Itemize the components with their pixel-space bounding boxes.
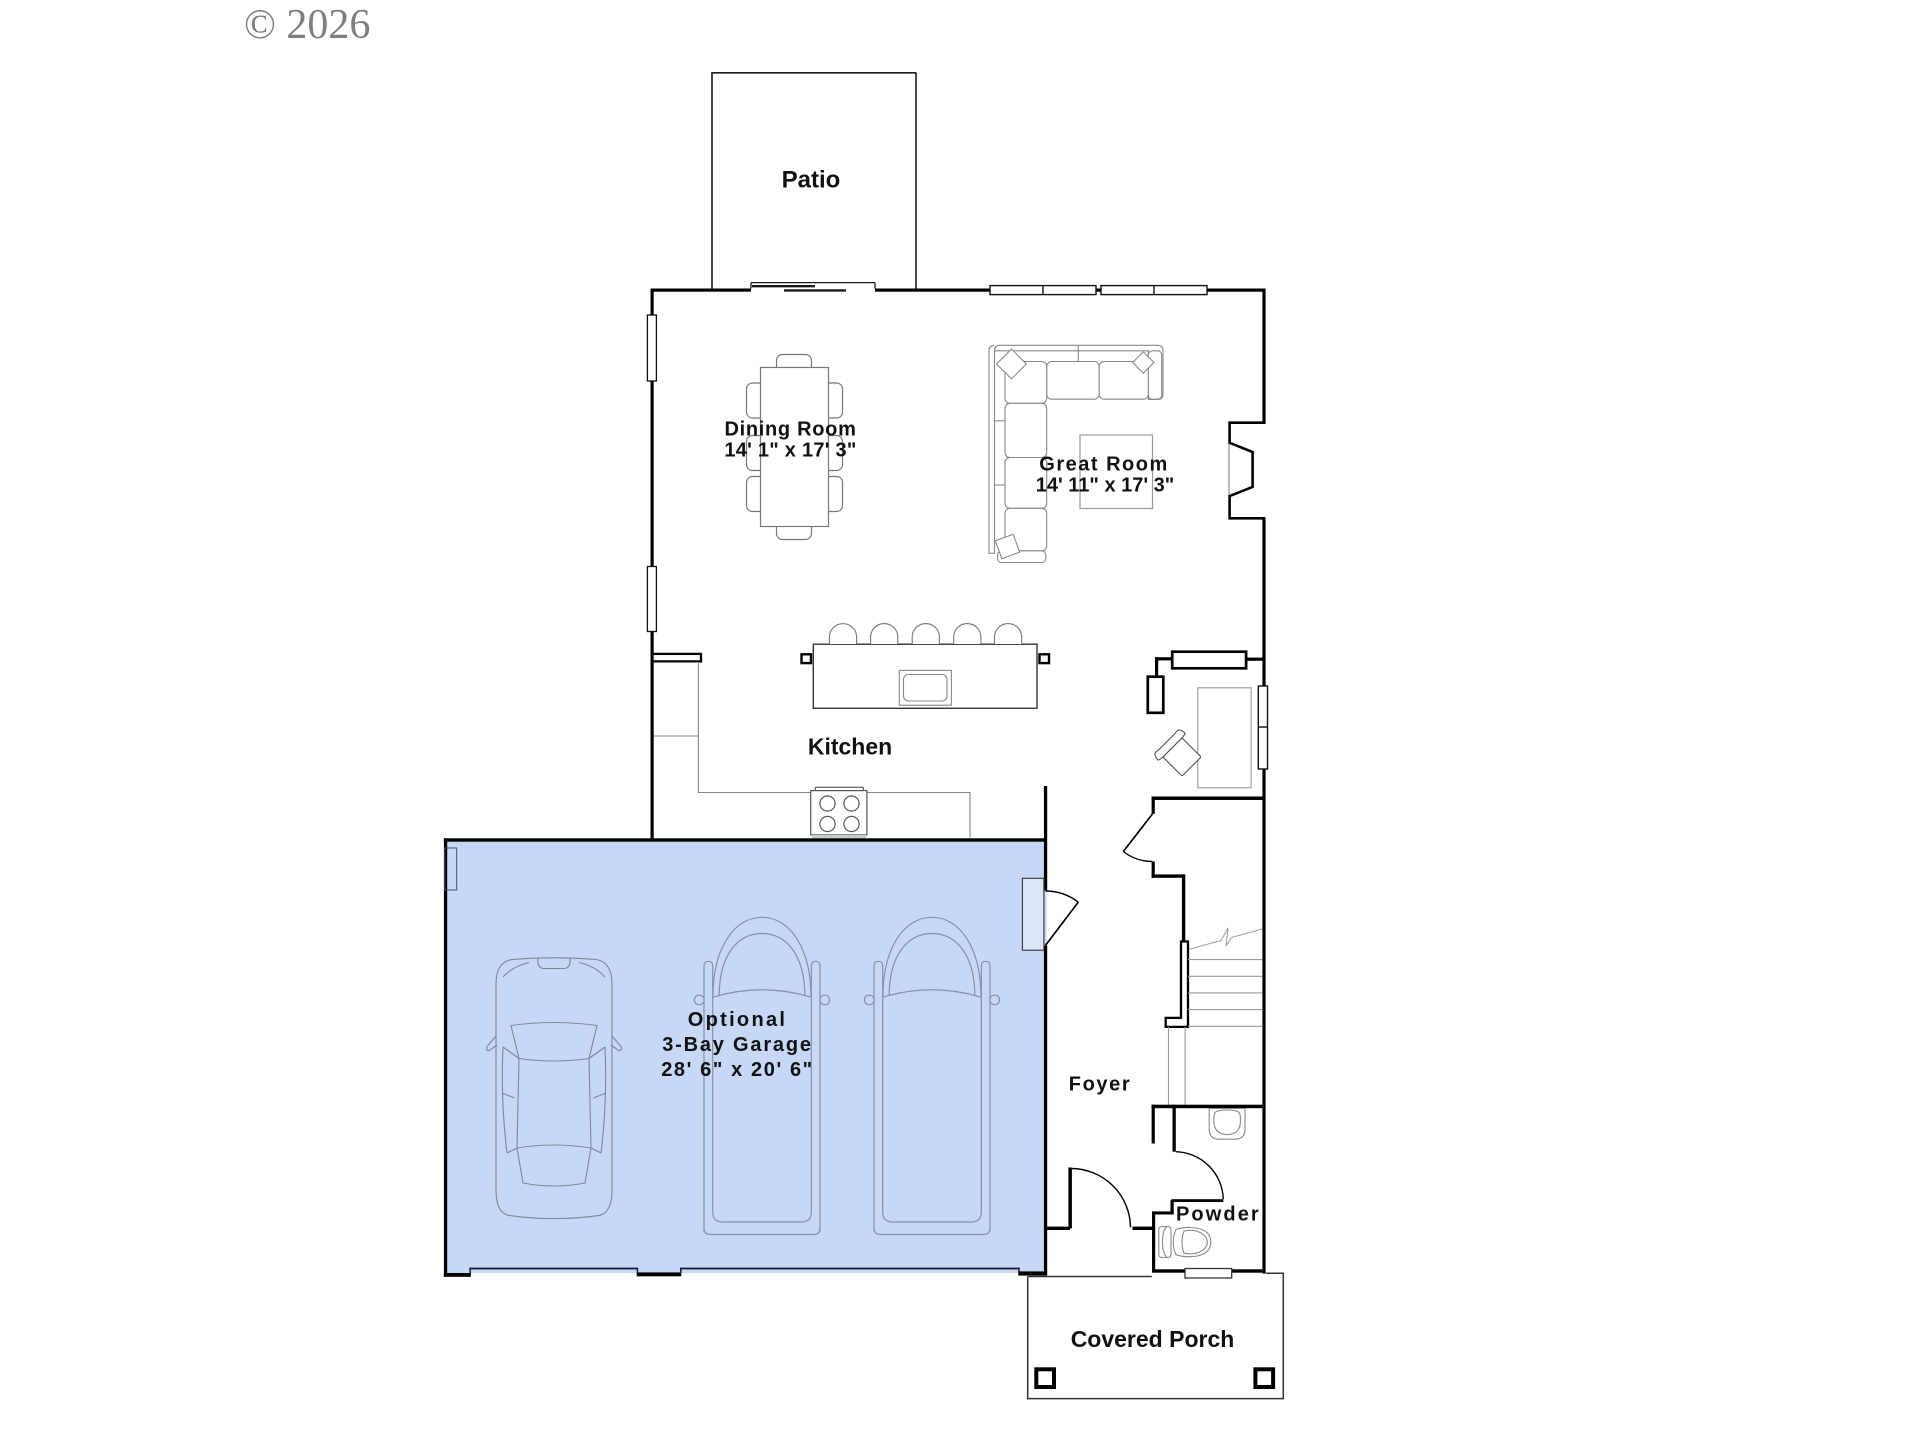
svg-text:Powder: Powder (1176, 1204, 1261, 1226)
svg-text:Optional: Optional (688, 1009, 788, 1031)
svg-text:28' 6" x 20' 6": 28' 6" x 20' 6" (661, 1059, 814, 1081)
svg-text:14' 1" x 17' 3": 14' 1" x 17' 3" (724, 440, 856, 462)
svg-text:3-Bay Garage: 3-Bay Garage (662, 1034, 813, 1056)
svg-text:Great Room: Great Room (1039, 454, 1168, 476)
svg-text:14' 11" x 17' 3": 14' 11" x 17' 3" (1036, 475, 1175, 497)
svg-text:Dining Room: Dining Room (724, 419, 856, 441)
svg-text:Kitchen: Kitchen (808, 734, 892, 760)
svg-text:Covered Porch: Covered Porch (1071, 1326, 1235, 1352)
svg-text:Foyer: Foyer (1069, 1074, 1131, 1096)
svg-text:© 2026: © 2026 (244, 2, 370, 48)
svg-text:Patio: Patio (782, 167, 841, 194)
